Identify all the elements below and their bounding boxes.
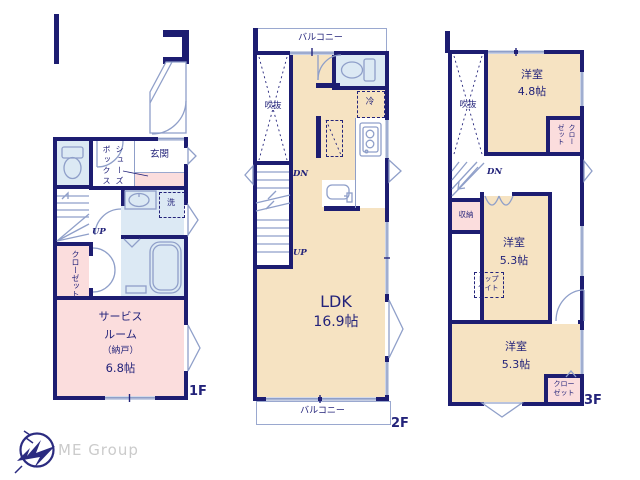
- entrance-step: [135, 172, 184, 187]
- void-label-2f: 吹抜: [257, 101, 289, 112]
- bay-window-icon: [389, 300, 403, 358]
- kitchen-counter-wall: [316, 116, 321, 158]
- stairs-area-2f: [257, 165, 289, 265]
- window-opening: [322, 397, 376, 401]
- ldk-label-block: LDK 16.9帖: [292, 292, 380, 332]
- floor-edge-line: [134, 141, 135, 186]
- bedroom1-label: 洋室: [484, 68, 580, 82]
- wall: [257, 265, 293, 269]
- stairs-down-label-2f: DN: [293, 169, 308, 180]
- closet1-label-3f: クローゼット: [553, 124, 577, 148]
- door-opening: [158, 137, 184, 141]
- bedroom1-label-block: 洋室 4.8帖: [484, 68, 580, 99]
- toilet-room-1f: [57, 141, 89, 185]
- service-room-line3: （納戸）: [57, 346, 184, 357]
- kitchen-counter-area: [355, 118, 385, 208]
- bedroom2-size: 5.3帖: [480, 254, 548, 268]
- stairs-up-label-1f: UP: [92, 227, 106, 238]
- window-opening: [290, 51, 334, 55]
- bedroom3-label: 洋室: [452, 340, 580, 354]
- floor-label-1f: 1F: [189, 384, 207, 400]
- window-opening: [385, 222, 389, 294]
- wall: [54, 14, 59, 64]
- casement-window-icon: [188, 148, 196, 164]
- storage-label: 収納: [452, 210, 480, 219]
- entrance-label: 玄関: [135, 149, 184, 161]
- wall: [121, 235, 184, 239]
- skylight-label: トップライト: [477, 275, 499, 293]
- ldk-size: 16.9帖: [292, 314, 380, 332]
- window-opening: [184, 325, 188, 371]
- entrance-porch: [150, 62, 186, 133]
- wall: [57, 242, 93, 246]
- bedroom1-size: 4.8帖: [484, 85, 580, 99]
- wall: [544, 374, 548, 402]
- casement-window-icon: [584, 161, 592, 181]
- window-opening: [488, 50, 514, 54]
- wall: [544, 374, 580, 378]
- wall: [89, 246, 93, 256]
- wall: [336, 86, 385, 90]
- window-opening: [184, 148, 188, 164]
- stairs-up-label-2f: UP: [293, 248, 307, 259]
- casement-window-icon: [188, 205, 198, 235]
- service-room-line1: サービス: [57, 310, 184, 324]
- void-label-3f: 吹抜: [452, 100, 484, 111]
- wall: [546, 116, 550, 152]
- laundry-label: 洗: [159, 198, 183, 208]
- closet2-label-3f: クローゼット: [553, 380, 575, 398]
- shoe-box-label: シューズボックス: [100, 145, 126, 189]
- compass-bird-logo-icon: [14, 424, 60, 474]
- wall: [550, 116, 580, 120]
- wall: [452, 198, 484, 202]
- cupboard-space: [326, 120, 343, 157]
- bedroom2-label: 洋室: [480, 236, 548, 250]
- bathroom-1f: [121, 239, 184, 296]
- wall: [445, 31, 450, 53]
- wall: [89, 288, 93, 296]
- window-opening: [266, 397, 318, 401]
- wall: [548, 192, 552, 324]
- balcony-bottom-label: バルコニー: [256, 406, 389, 417]
- wall: [452, 230, 484, 234]
- bedroom3-size: 5.3帖: [452, 358, 580, 372]
- floor-plan-canvas: 玄関 シューズボックス 洗 UP クローゼット サービス ルーム （納戸） 6.…: [0, 0, 640, 480]
- counter-edge-line: [355, 118, 356, 208]
- wall: [89, 141, 93, 190]
- closet-label-1f: クローゼット: [65, 250, 83, 300]
- window-opening: [385, 302, 389, 356]
- service-room-size: 6.8帖: [57, 361, 184, 375]
- wall: [163, 57, 189, 64]
- window-opening: [385, 362, 389, 395]
- bedroom3-label-block: 洋室 5.3帖: [452, 340, 580, 372]
- window-opening: [385, 120, 389, 158]
- fridge-label: 冷: [357, 97, 383, 108]
- balcony-top-label: バルコニー: [256, 33, 385, 44]
- stairs-down-label-3f: DN: [487, 167, 502, 178]
- sink-counter-area: [322, 180, 356, 207]
- bedroom2-label-block: 洋室 5.3帖: [480, 236, 548, 268]
- wall: [512, 192, 552, 196]
- wall: [289, 55, 293, 165]
- ldk-label: LDK: [292, 292, 380, 312]
- door-opening: [552, 320, 578, 324]
- window-opening: [484, 402, 522, 406]
- service-room-label: サービス ルーム （納戸） 6.8帖: [57, 310, 184, 375]
- door-opening: [484, 192, 512, 196]
- wall: [484, 152, 580, 156]
- wall: [316, 83, 340, 88]
- floor-label-2f: 2F: [391, 416, 409, 432]
- window-opening: [580, 330, 584, 374]
- wall: [57, 185, 93, 189]
- wall: [121, 190, 125, 206]
- window-opening: [105, 396, 155, 400]
- bay-window-icon: [188, 325, 200, 371]
- logo-text: ME Group: [58, 441, 139, 459]
- window-opening: [580, 226, 584, 276]
- window-opening: [580, 72, 584, 106]
- corridor-3f: [552, 156, 580, 320]
- wall: [257, 161, 293, 165]
- service-room-line2: ルーム: [57, 328, 184, 342]
- casement-window-icon: [245, 166, 253, 184]
- entrance-door-arc: [152, 101, 186, 134]
- toilet-room-2f: [336, 55, 385, 86]
- floor-label-3f: 3F: [584, 393, 602, 409]
- window-opening: [518, 50, 544, 54]
- casement-window-icon: [389, 160, 401, 182]
